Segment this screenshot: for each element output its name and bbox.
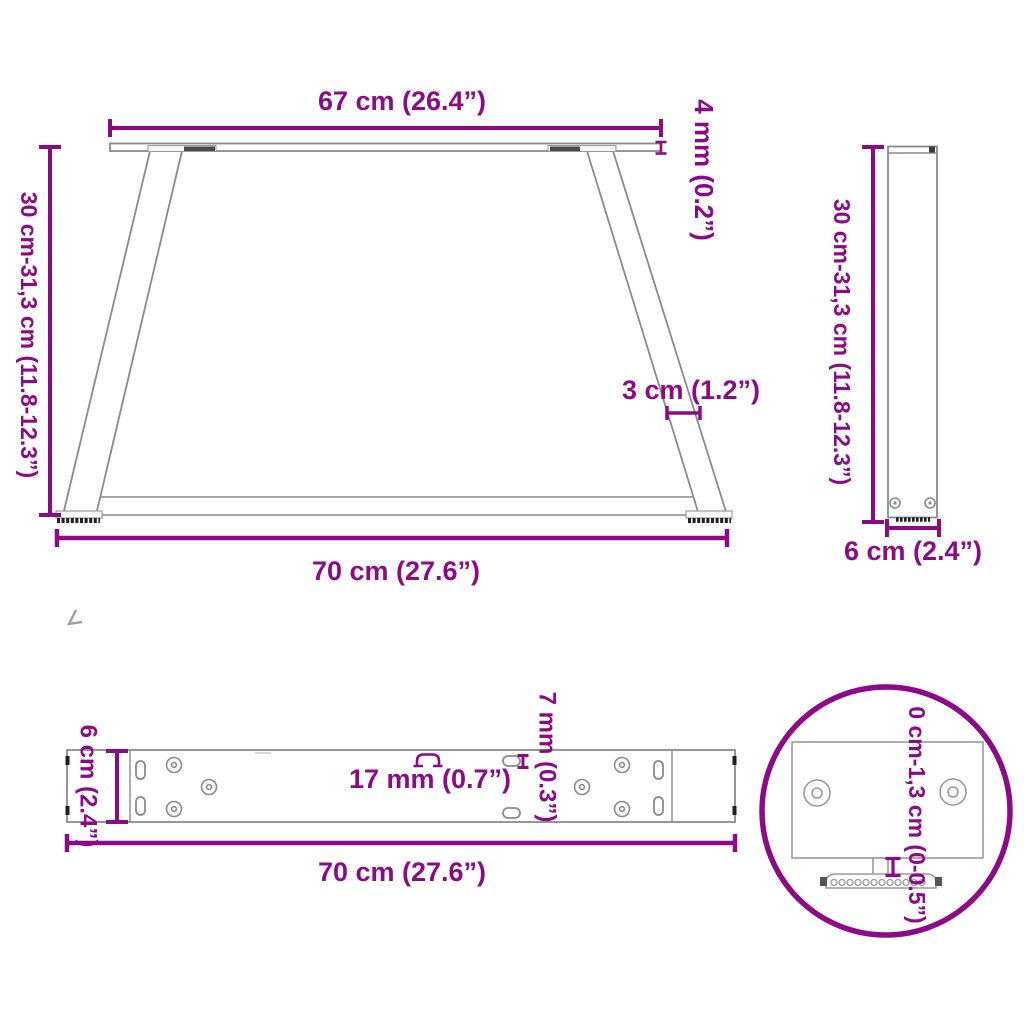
front-top-width-label: 67 cm (26.4”) xyxy=(318,86,486,116)
right-foot-plate xyxy=(686,511,732,518)
side-top-plate-mark xyxy=(929,147,935,153)
left-foot-plate xyxy=(56,511,102,518)
side-screw-dot xyxy=(893,501,896,504)
front-bottom-dimension-line xyxy=(57,529,727,547)
front-leg-width-label: 3 cm (1.2”) xyxy=(622,375,760,405)
detail-plate xyxy=(792,742,983,858)
front-height-label: 30 cm-31,3 cm (11.8-12.3”) xyxy=(16,192,42,478)
angle-mark-icon xyxy=(69,610,82,624)
diagram-svg: 67 cm (26.4”) 4 mm (0.2”) 30 cm-31,3 cm … xyxy=(0,0,1024,1024)
right-plate-bolt-mark xyxy=(550,147,580,152)
plate-depth-label: 6 cm (2.4”) xyxy=(75,725,102,848)
left-plate-bolt-mark xyxy=(184,147,215,152)
foot-stem xyxy=(873,858,888,875)
front-top-dimension-line xyxy=(110,119,661,137)
plate-top-view: 17 mm (0.7”) 7 mm (0.3”) 6 cm (2.4”) 70 … xyxy=(67,692,735,887)
plate-length-label: 70 cm (27.6”) xyxy=(318,857,486,887)
plate-slot-width-label: 7 mm (0.3”) xyxy=(534,692,561,823)
detail-view: 0 cm-1,3 cm (0-0.5”) xyxy=(762,687,1010,935)
front-view: 67 cm (26.4”) 4 mm (0.2”) 30 cm-31,3 cm … xyxy=(16,86,760,624)
front-thickness-label: 4 mm (0.2”) xyxy=(689,99,719,241)
side-height-label: 30 cm-31,3 cm (11.8-12.3”) xyxy=(829,199,855,485)
side-depth-label: 6 cm (2.4”) xyxy=(844,536,982,566)
side-leg-body xyxy=(888,147,937,518)
detail-adjust-label: 0 cm-1,3 cm (0-0.5”) xyxy=(904,706,930,923)
disc-end-cap xyxy=(935,877,942,886)
dimension-diagram: 67 cm (26.4”) 4 mm (0.2”) 30 cm-31,3 cm … xyxy=(0,0,1024,1024)
side-screw-dot xyxy=(928,501,931,504)
disc-end-cap xyxy=(820,877,827,886)
plate-length-dimension-line xyxy=(67,834,735,852)
side-view: 30 cm-31,3 cm (11.8-12.3”) 6 cm (2.4”) xyxy=(829,147,982,567)
plate-slot-length-label: 17 mm (0.7”) xyxy=(349,764,511,794)
front-bottom-width-label: 70 cm (27.6”) xyxy=(312,556,480,586)
left-leg xyxy=(63,151,182,515)
side-height-dimension-line xyxy=(862,147,884,522)
